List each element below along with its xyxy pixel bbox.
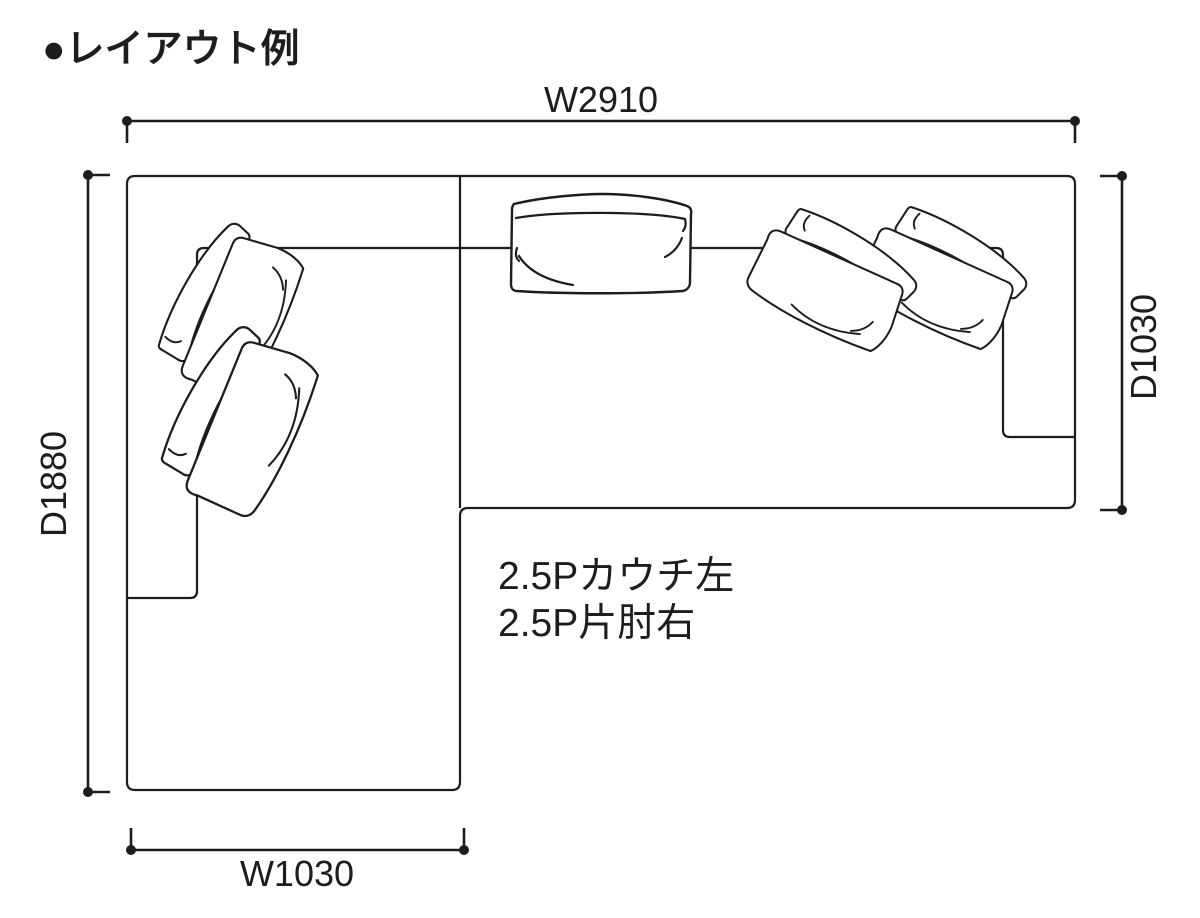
dimension-endpoint-dot [1070,116,1080,126]
configuration-caption: 2.5Pカウチ左 2.5P片肘右 [498,555,734,645]
dimension-endpoint-dot [122,116,132,126]
dimension-endpoint-dot [1117,505,1127,515]
layout-example-page: ●レイアウト例 W2910 D1880 D1030 [0,0,1200,918]
dimension-top: W2910 [122,79,1080,143]
dimension-top-label: W2910 [544,79,658,120]
center-back-cushion [511,194,691,293]
caption-line-2: 2.5P片肘右 [498,602,695,645]
dimension-left: D1880 [33,170,110,797]
dimension-bottom: W1030 [126,828,469,894]
dimension-right: D1030 [1100,171,1164,515]
dimension-endpoint-dot [1117,171,1127,181]
dimension-endpoint-dot [126,845,136,855]
dimension-left-label: D1880 [33,431,74,537]
dimension-endpoint-dot [83,170,93,180]
page-title: ●レイアウト例 [42,28,300,71]
sofa-layout-diagram: ●レイアウト例 W2910 D1880 D1030 [0,0,1200,918]
caption-line-1: 2.5Pカウチ左 [498,555,734,598]
dimension-right-label: D1030 [1123,294,1164,400]
dimension-endpoint-dot [83,787,93,797]
dimension-endpoint-dot [459,845,469,855]
dimension-bottom-label: W1030 [240,853,354,894]
